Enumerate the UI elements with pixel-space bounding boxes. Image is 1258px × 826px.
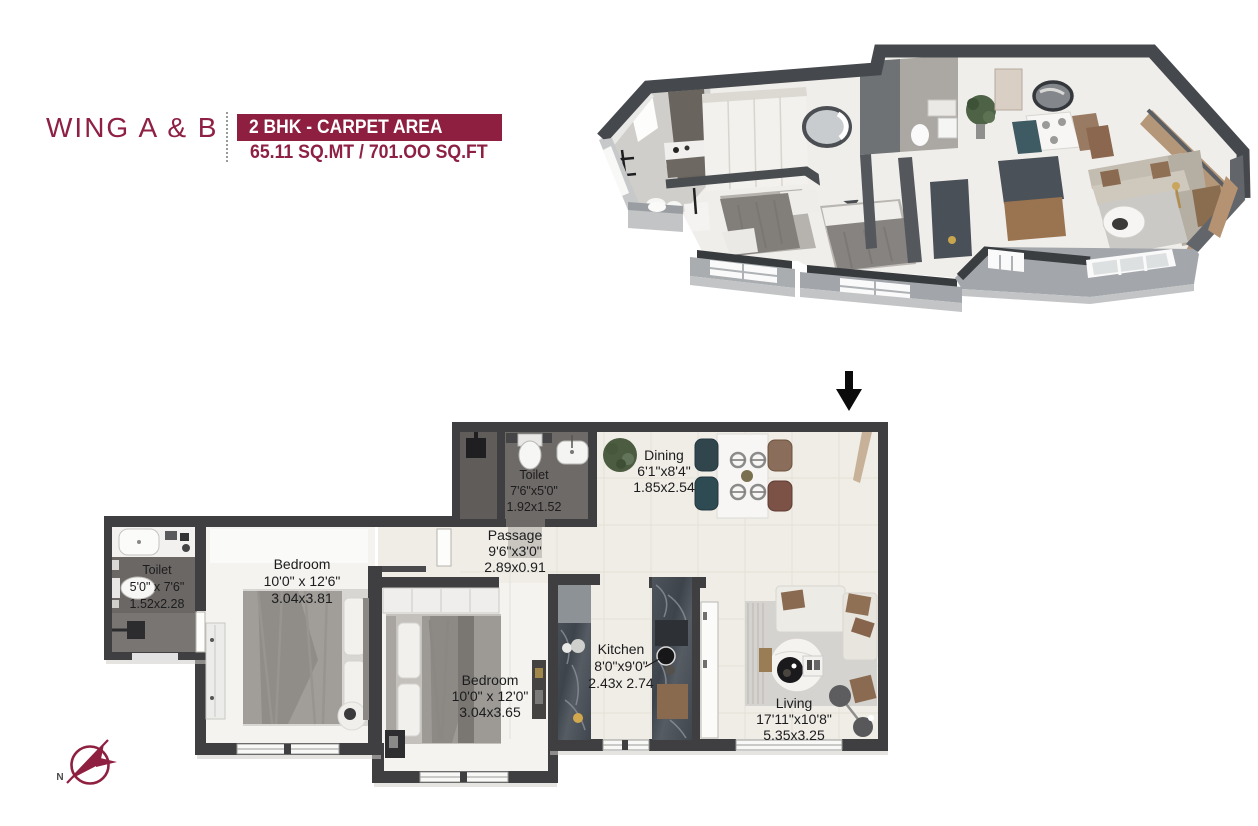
svg-text:Kitchen: Kitchen xyxy=(598,641,645,657)
svg-text:1.52x2.28: 1.52x2.28 xyxy=(130,597,185,611)
svg-text:8'0"x9'0": 8'0"x9'0" xyxy=(594,658,647,674)
svg-text:Bedroom: Bedroom xyxy=(462,672,519,688)
svg-text:Toilet: Toilet xyxy=(519,468,549,482)
svg-text:Bedroom: Bedroom xyxy=(274,556,331,572)
svg-text:Passage: Passage xyxy=(488,527,543,543)
svg-text:7'6"x5'0": 7'6"x5'0" xyxy=(510,484,558,498)
svg-text:Living: Living xyxy=(776,695,813,711)
svg-text:9'6"x3'0": 9'6"x3'0" xyxy=(488,543,541,559)
svg-text:10'0" x 12'6": 10'0" x 12'6" xyxy=(264,573,341,589)
svg-text:6'1"x8'4": 6'1"x8'4" xyxy=(637,463,690,479)
svg-text:2.43x 2.74: 2.43x 2.74 xyxy=(588,675,654,691)
svg-text:5.35x3.25: 5.35x3.25 xyxy=(763,727,825,743)
svg-text:5'0" x 7'6": 5'0" x 7'6" xyxy=(130,580,185,594)
svg-text:Toilet: Toilet xyxy=(142,563,172,577)
svg-text:N: N xyxy=(56,772,63,783)
svg-text:Dining: Dining xyxy=(644,447,684,463)
svg-text:10'0" x 12'0": 10'0" x 12'0" xyxy=(452,688,529,704)
svg-text:2.89x0.91: 2.89x0.91 xyxy=(484,559,546,575)
svg-text:17'11"x10'8": 17'11"x10'8" xyxy=(756,711,832,727)
svg-text:1.92x1.52: 1.92x1.52 xyxy=(507,500,562,514)
svg-text:3.04x3.65: 3.04x3.65 xyxy=(459,704,521,720)
svg-text:3.04x3.81: 3.04x3.81 xyxy=(271,590,333,606)
svg-text:1.85x2.54: 1.85x2.54 xyxy=(633,479,695,495)
